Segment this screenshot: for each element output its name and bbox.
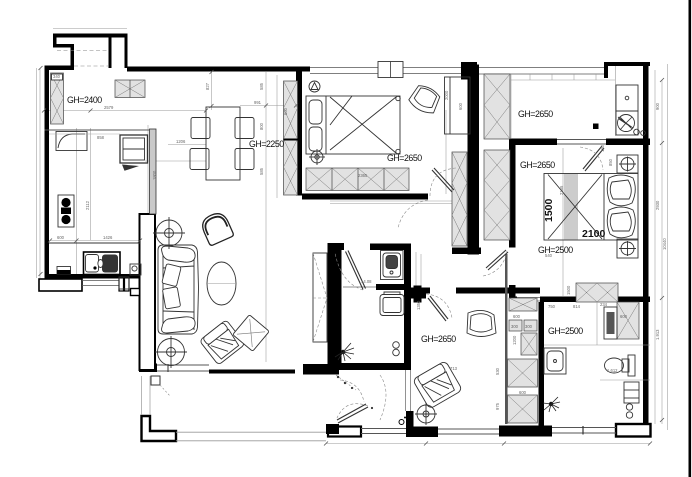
- svg-text:585: 585: [259, 82, 264, 90]
- svg-text:2365: 2365: [358, 173, 368, 178]
- svg-text:2112: 2112: [85, 200, 90, 210]
- svg-text:1.913: 1.913: [655, 329, 660, 340]
- svg-text:827: 827: [205, 82, 210, 90]
- svg-text:713: 713: [450, 366, 458, 371]
- svg-text:800: 800: [259, 122, 264, 130]
- svg-text:1426: 1426: [103, 235, 113, 240]
- svg-text:2100: 2100: [582, 228, 606, 240]
- svg-text:750: 750: [548, 304, 556, 309]
- svg-text:1500: 1500: [543, 198, 555, 222]
- svg-text:340: 340: [53, 74, 61, 79]
- svg-text:GH=2250: GH=2250: [249, 139, 284, 149]
- svg-text:850: 850: [608, 158, 613, 166]
- svg-text:540: 540: [545, 253, 553, 258]
- svg-text:2930: 2930: [655, 200, 660, 210]
- svg-text:585: 585: [259, 167, 264, 175]
- svg-text:GH=2500: GH=2500: [548, 326, 583, 336]
- svg-text:234: 234: [600, 302, 608, 307]
- svg-text:300: 300: [525, 324, 533, 329]
- svg-text:900: 900: [655, 102, 660, 110]
- svg-text:GH=2650: GH=2650: [520, 160, 555, 170]
- svg-text:991: 991: [254, 100, 262, 105]
- svg-text:1500: 1500: [566, 285, 571, 295]
- svg-text:1800: 1800: [152, 170, 157, 180]
- svg-text:GH=2400: GH=2400: [67, 95, 102, 105]
- svg-text:2000: 2000: [444, 90, 449, 100]
- svg-text:14.08: 14.08: [361, 279, 372, 284]
- svg-text:814: 814: [573, 304, 581, 309]
- svg-text:GH=2650: GH=2650: [387, 153, 422, 163]
- svg-text:2185: 2185: [559, 185, 564, 195]
- svg-text:1206: 1206: [176, 139, 186, 144]
- svg-text:530: 530: [495, 367, 500, 375]
- svg-text:600: 600: [513, 314, 521, 319]
- svg-text:GH=2650: GH=2650: [421, 334, 456, 344]
- svg-text:10440: 10440: [662, 238, 667, 250]
- svg-text:975: 975: [495, 402, 500, 410]
- svg-text:300: 300: [511, 324, 519, 329]
- svg-text:GH=2500: GH=2500: [538, 245, 573, 255]
- svg-text:150: 150: [600, 144, 605, 152]
- svg-text:1.612: 1.612: [607, 368, 618, 373]
- svg-text:600: 600: [283, 107, 288, 115]
- svg-text:600: 600: [57, 235, 65, 240]
- svg-text:1350: 1350: [416, 300, 421, 310]
- svg-text:600: 600: [458, 102, 463, 110]
- svg-text:600: 600: [620, 314, 628, 319]
- svg-text:600: 600: [519, 390, 527, 395]
- svg-text:GH=2650: GH=2650: [518, 109, 553, 119]
- svg-text:858: 858: [97, 135, 105, 140]
- svg-text:1200: 1200: [512, 335, 517, 345]
- svg-text:2579: 2579: [104, 105, 114, 110]
